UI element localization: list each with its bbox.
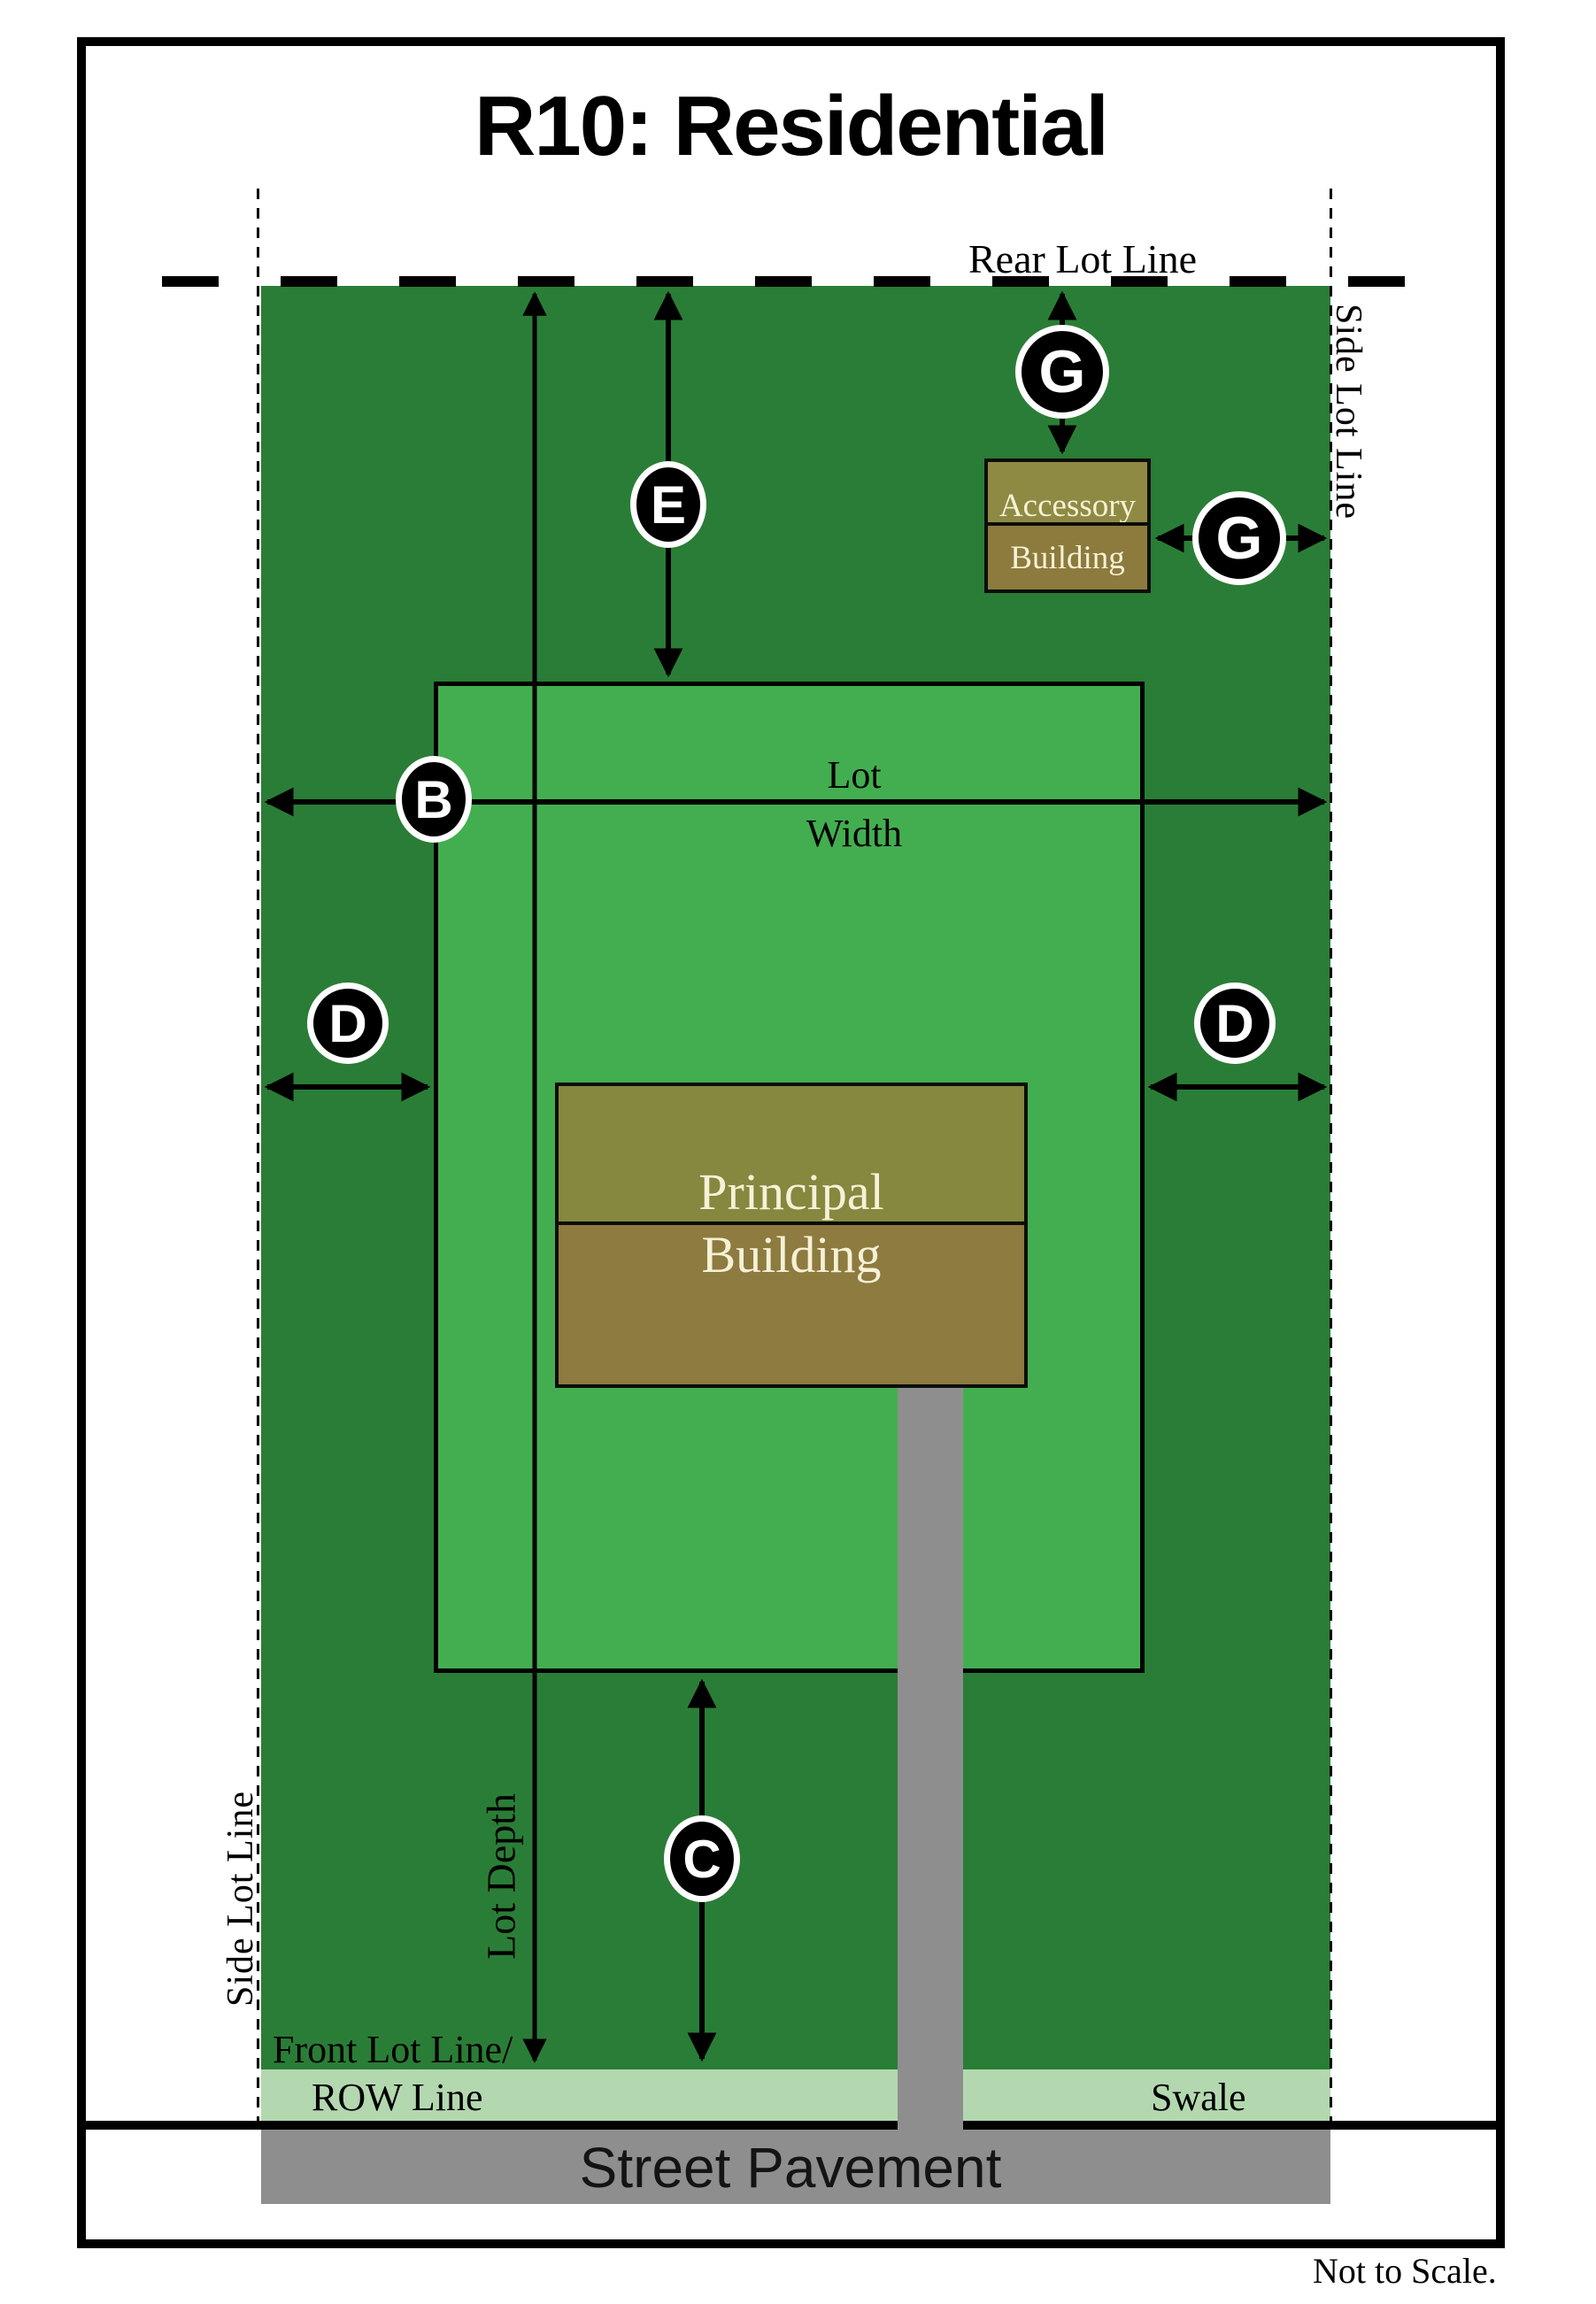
accessory-building-label-line1: Accessory	[999, 489, 1136, 522]
not-to-scale-note: Not to Scale.	[1313, 2250, 1497, 2292]
badge-e: E	[630, 461, 706, 548]
badge-c: C	[664, 1815, 740, 1902]
driveway	[898, 1388, 963, 2204]
principal-building-upper: Principal	[559, 1086, 1024, 1221]
principal-building-lower: Building	[559, 1221, 1024, 1384]
page-title: R10: Residential	[77, 78, 1505, 175]
rear-lot-line-label: Rear Lot Line	[968, 235, 1197, 282]
accessory-building-label-line2: Building	[1010, 542, 1125, 574]
row-line-segment-right	[963, 2121, 1496, 2130]
lot-width-label-line1: Lot	[827, 752, 881, 798]
row-line-label: ROW Line	[312, 2075, 483, 2120]
street-pavement-label: Street Pavement	[580, 2135, 1002, 2200]
lot-width-label-line2: Width	[806, 811, 902, 856]
rear-lot-line	[162, 276, 1434, 287]
side-lot-line-label-right: Side Lot Line	[1327, 304, 1369, 520]
badge-d-right: D	[1194, 982, 1276, 1064]
accessory-building-upper: Accessory	[988, 462, 1147, 522]
accessory-building-lower: Building	[988, 522, 1147, 589]
row-line-segment-left	[86, 2121, 898, 2130]
lot-depth-label: Lot Depth	[478, 1793, 525, 1960]
accessory-building: Accessory Building	[984, 458, 1151, 593]
badge-d-left: D	[307, 982, 389, 1064]
badge-g-top: G	[1015, 325, 1109, 419]
side-lot-line-label-left: Side Lot Line	[220, 1791, 262, 2007]
swale-label: Swale	[1151, 2075, 1246, 2120]
front-lot-line-label: Front Lot Line/	[273, 2027, 513, 2072]
badge-b: B	[396, 756, 472, 843]
principal-building: Principal Building	[555, 1083, 1028, 1388]
principal-building-label-line2: Building	[701, 1229, 881, 1283]
badge-g-side: G	[1192, 491, 1286, 585]
principal-building-label-line1: Principal	[698, 1166, 883, 1220]
